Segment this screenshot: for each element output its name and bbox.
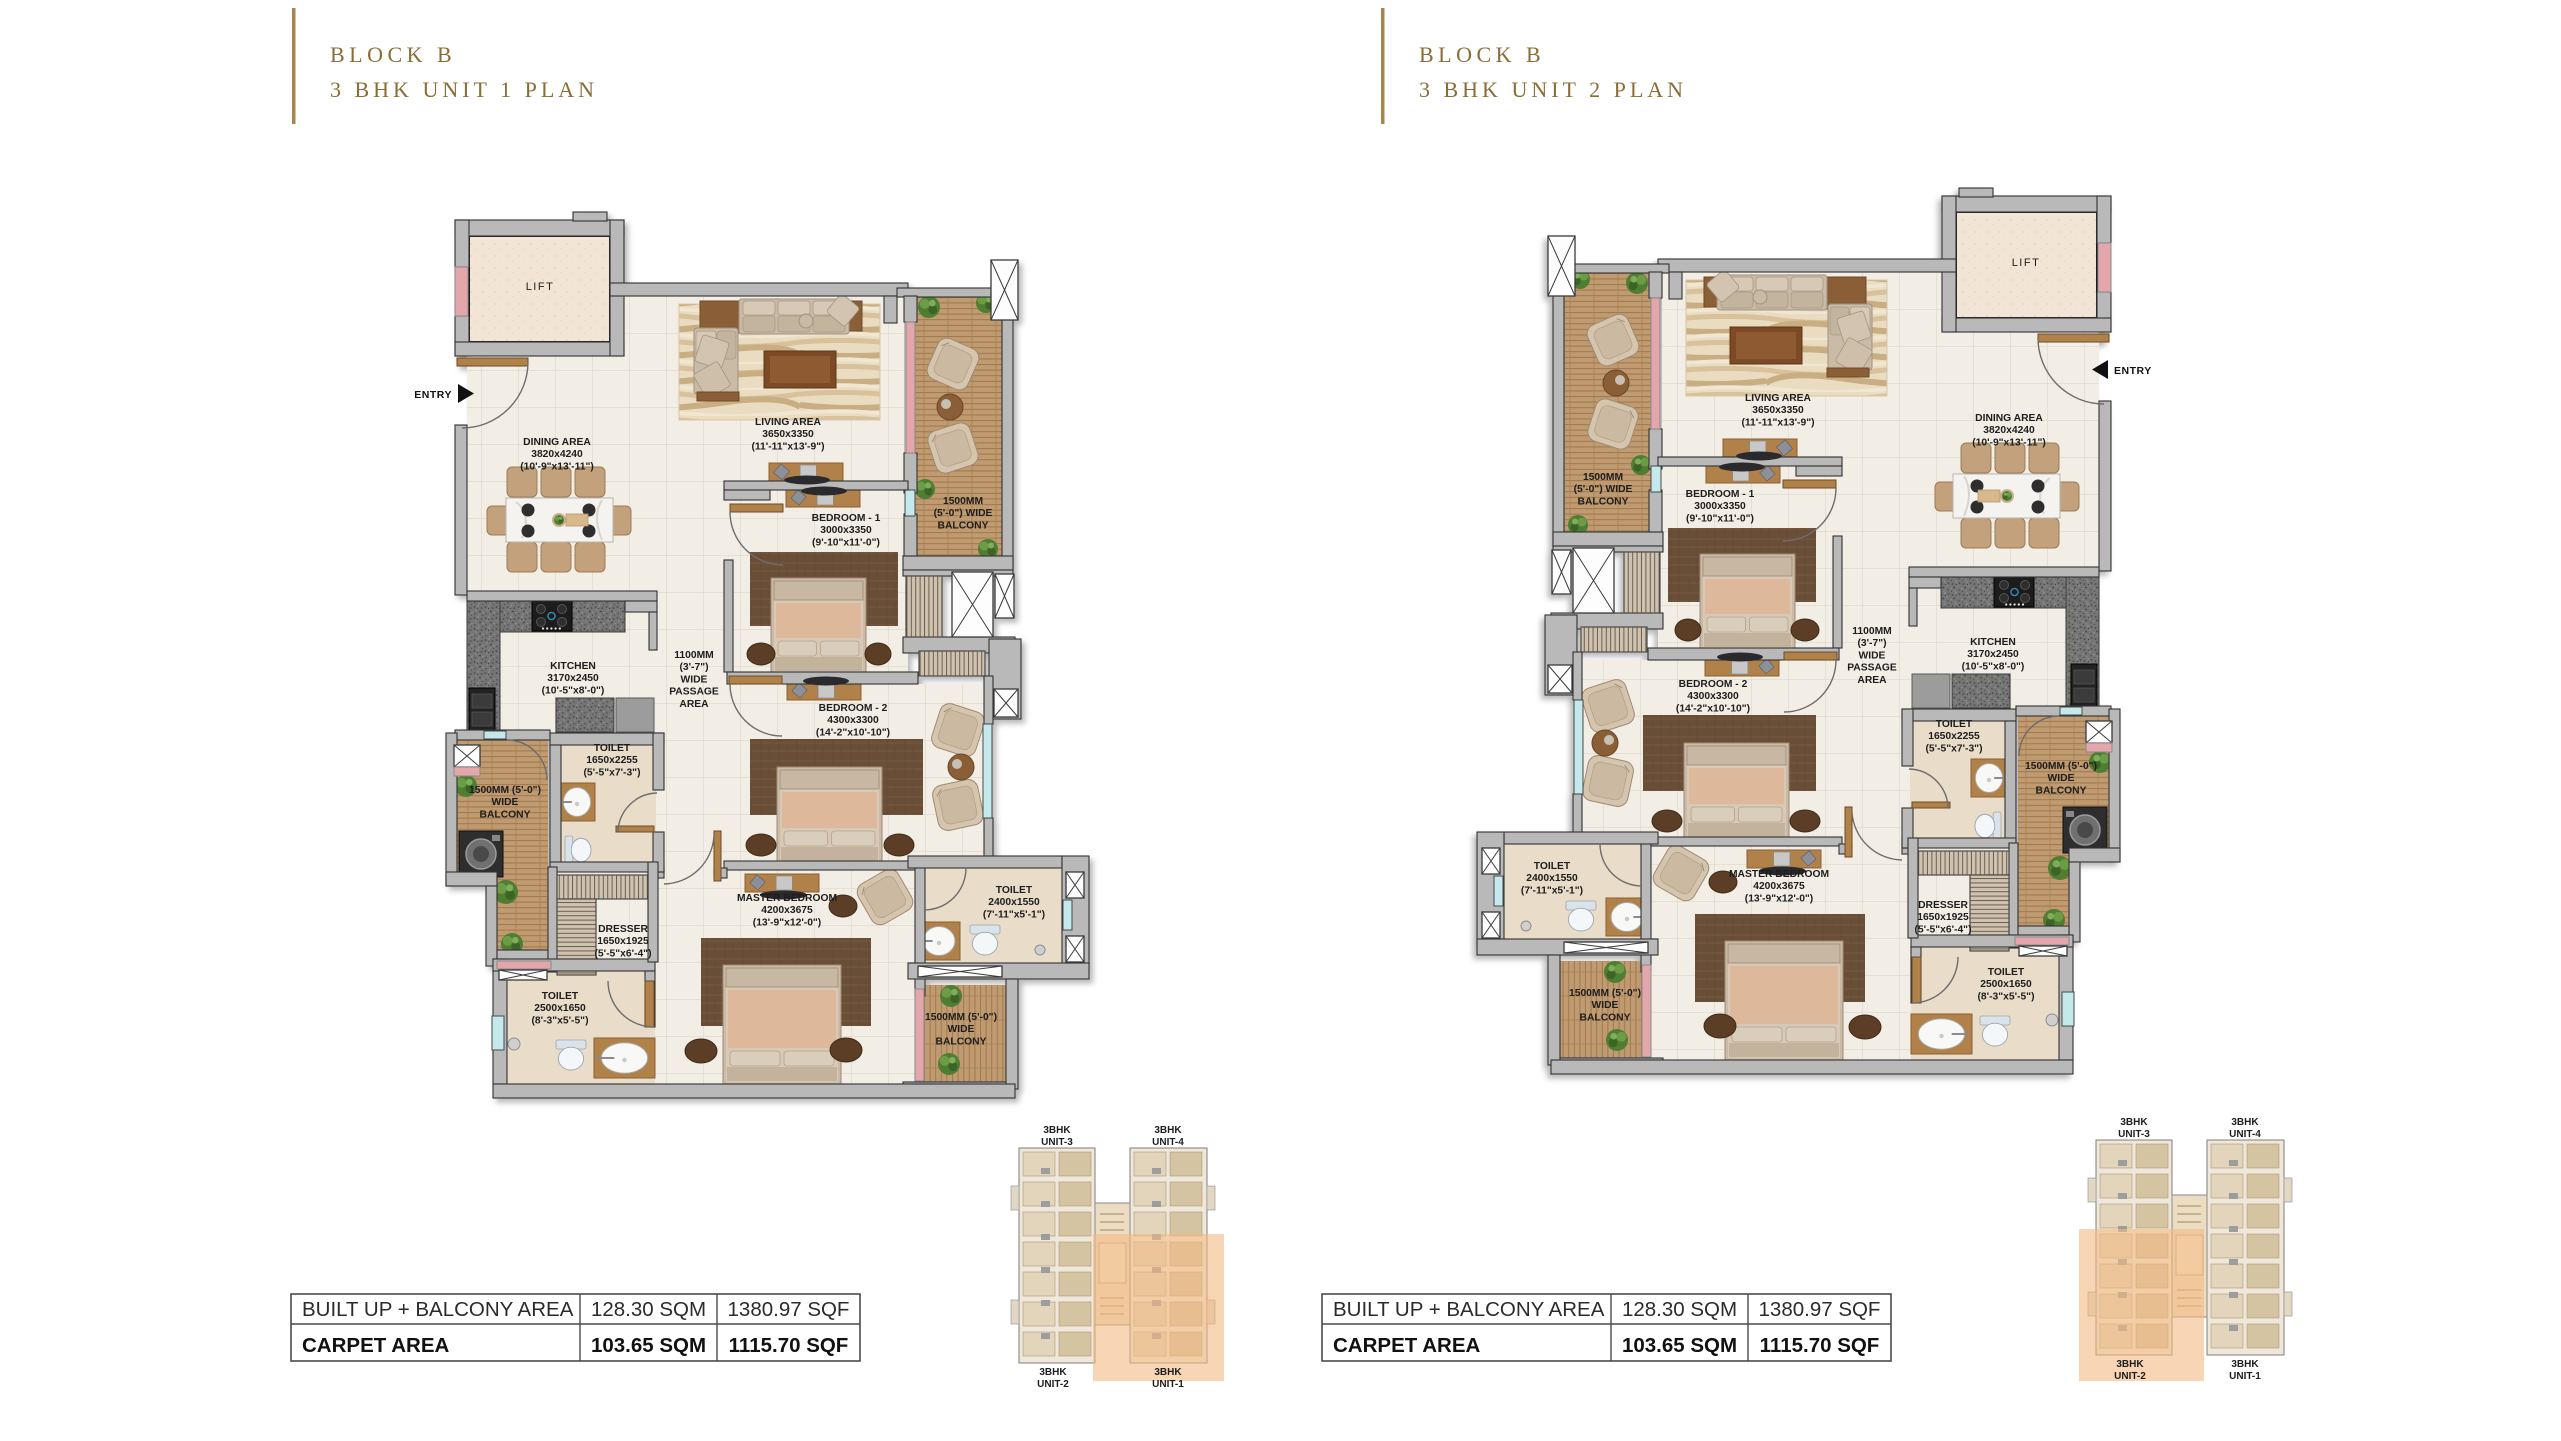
- svg-text:(5'-5"x7'-3"): (5'-5"x7'-3"): [1925, 743, 1982, 754]
- svg-text:2500x1650: 2500x1650: [1980, 979, 2032, 990]
- svg-text:1500MM: 1500MM: [1583, 472, 1623, 483]
- svg-text:WIDE: WIDE: [1592, 1000, 1619, 1011]
- svg-text:(7'-11"x5'-1"): (7'-11"x5'-1"): [1521, 885, 1583, 896]
- svg-text:(8'-3"x5'-5"): (8'-3"x5'-5"): [531, 1015, 588, 1026]
- svg-text:UNIT-4: UNIT-4: [2229, 1129, 2261, 1140]
- svg-text:(10'-5"x8'-0"): (10'-5"x8'-0"): [1962, 661, 2025, 672]
- svg-text:BEDROOM - 1: BEDROOM - 1: [1686, 489, 1755, 500]
- svg-text:103.65 SQM: 103.65 SQM: [1622, 1334, 1737, 1357]
- svg-text:(9'-10"x11'-0"): (9'-10"x11'-0"): [812, 537, 880, 548]
- svg-text:BALCONY: BALCONY: [1578, 496, 1629, 507]
- svg-text:3BHK: 3BHK: [2116, 1359, 2144, 1370]
- svg-text:1650x1925: 1650x1925: [1917, 912, 1969, 923]
- svg-text:BALCONY: BALCONY: [480, 809, 531, 820]
- svg-text:BALCONY: BALCONY: [936, 1036, 987, 1047]
- svg-text:BUILT UP + BALCONY AREA: BUILT UP + BALCONY AREA: [1333, 1298, 1605, 1321]
- svg-text:KITCHEN: KITCHEN: [1970, 637, 2016, 648]
- svg-text:AREA: AREA: [1857, 675, 1887, 686]
- svg-text:3BHK: 3BHK: [1154, 1367, 1182, 1378]
- svg-text:3000x3350: 3000x3350: [820, 525, 872, 536]
- svg-text:LIFT: LIFT: [526, 281, 555, 293]
- svg-text:(3'-7"): (3'-7"): [1857, 638, 1886, 649]
- svg-text:BUILT UP + BALCONY AREA: BUILT UP + BALCONY AREA: [302, 1298, 574, 1321]
- svg-text:103.65 SQM: 103.65 SQM: [591, 1334, 706, 1357]
- svg-text:BEDROOM - 2: BEDROOM - 2: [1679, 679, 1748, 690]
- svg-text:BEDROOM - 1: BEDROOM - 1: [812, 513, 881, 524]
- svg-text:LIFT: LIFT: [2012, 257, 2041, 269]
- svg-text:1500MM (5'-0"): 1500MM (5'-0"): [2025, 761, 2097, 772]
- svg-text:3170x2450: 3170x2450: [1967, 649, 2019, 660]
- svg-text:ENTRY: ENTRY: [414, 389, 452, 401]
- svg-text:1500MM (5'-0"): 1500MM (5'-0"): [469, 785, 541, 796]
- svg-text:TOILET: TOILET: [594, 743, 631, 754]
- svg-text:1100MM: 1100MM: [674, 650, 714, 661]
- svg-text:(10'-9"x13'-11"): (10'-9"x13'-11"): [520, 461, 594, 472]
- svg-text:3000x3350: 3000x3350: [1694, 501, 1746, 512]
- svg-text:3BHK: 3BHK: [1154, 1125, 1182, 1136]
- svg-text:3170x2450: 3170x2450: [547, 673, 599, 684]
- svg-text:(13'-9"x12'-0"): (13'-9"x12'-0"): [1745, 893, 1813, 904]
- svg-text:2400x1550: 2400x1550: [988, 897, 1040, 908]
- svg-text:128.30 SQM: 128.30 SQM: [591, 1298, 706, 1321]
- svg-text:3 BHK UNIT 1 PLAN: 3 BHK UNIT 1 PLAN: [330, 77, 598, 102]
- svg-text:1380.97 SQF: 1380.97 SQF: [1759, 1298, 1881, 1321]
- svg-text:DRESSER: DRESSER: [598, 924, 648, 935]
- svg-text:BALCONY: BALCONY: [938, 520, 989, 531]
- svg-text:PASSAGE: PASSAGE: [669, 687, 719, 698]
- svg-text:(5'-0") WIDE: (5'-0") WIDE: [1574, 484, 1633, 495]
- svg-text:(11'-11"x13'-9"): (11'-11"x13'-9"): [751, 441, 824, 452]
- svg-text:BLOCK B: BLOCK B: [1419, 42, 1545, 67]
- svg-text:1650x1925: 1650x1925: [597, 936, 649, 947]
- svg-text:3BHK: 3BHK: [2231, 1117, 2259, 1128]
- svg-text:UNIT-3: UNIT-3: [2118, 1129, 2150, 1140]
- svg-text:MASTER BEDROOM: MASTER BEDROOM: [737, 893, 837, 904]
- svg-text:WIDE: WIDE: [948, 1024, 975, 1035]
- svg-text:1500MM (5'-0"): 1500MM (5'-0"): [925, 1012, 997, 1023]
- svg-text:(8'-3"x5'-5"): (8'-3"x5'-5"): [1977, 991, 2034, 1002]
- svg-text:(11'-11"x13'-9"): (11'-11"x13'-9"): [1741, 417, 1814, 428]
- svg-text:(9'-10"x11'-0"): (9'-10"x11'-0"): [1686, 513, 1754, 524]
- svg-text:2500x1650: 2500x1650: [534, 1003, 586, 1014]
- svg-text:3 BHK UNIT 2 PLAN: 3 BHK UNIT 2 PLAN: [1419, 77, 1687, 102]
- svg-text:UNIT-2: UNIT-2: [1037, 1379, 1069, 1390]
- svg-text:UNIT-1: UNIT-1: [2229, 1371, 2261, 1382]
- svg-text:TOILET: TOILET: [1534, 861, 1571, 872]
- svg-text:4200x3675: 4200x3675: [761, 905, 813, 916]
- svg-text:(14'-2"x10'-10"): (14'-2"x10'-10"): [1676, 703, 1750, 714]
- svg-text:UNIT-4: UNIT-4: [1152, 1137, 1184, 1148]
- svg-text:2400x1550: 2400x1550: [1526, 873, 1578, 884]
- svg-text:(3'-7"): (3'-7"): [679, 662, 708, 673]
- svg-text:128.30 SQM: 128.30 SQM: [1622, 1298, 1737, 1321]
- svg-text:WIDE: WIDE: [681, 674, 708, 685]
- svg-text:1115.70 SQF: 1115.70 SQF: [1760, 1334, 1880, 1357]
- svg-text:AREA: AREA: [679, 699, 709, 710]
- svg-text:1115.70 SQF: 1115.70 SQF: [729, 1334, 849, 1357]
- svg-text:(5'-5"x7'-3"): (5'-5"x7'-3"): [583, 767, 640, 778]
- svg-text:DINING AREA: DINING AREA: [1975, 413, 2043, 424]
- svg-text:4300x3300: 4300x3300: [1687, 691, 1739, 702]
- svg-text:WIDE: WIDE: [492, 797, 519, 808]
- svg-text:CARPET AREA: CARPET AREA: [302, 1334, 449, 1357]
- svg-text:3BHK: 3BHK: [1043, 1125, 1071, 1136]
- svg-text:3BHK: 3BHK: [1039, 1367, 1067, 1378]
- svg-text:(7'-11"x5'-1"): (7'-11"x5'-1"): [983, 909, 1045, 920]
- svg-text:(10'-5"x8'-0"): (10'-5"x8'-0"): [542, 685, 605, 696]
- svg-text:MASTER BEDROOM: MASTER BEDROOM: [1729, 869, 1829, 880]
- svg-text:LIVING AREA: LIVING AREA: [755, 417, 822, 428]
- svg-text:(14'-2"x10'-10"): (14'-2"x10'-10"): [816, 727, 890, 738]
- svg-text:1650x2255: 1650x2255: [1928, 731, 1980, 742]
- svg-text:WIDE: WIDE: [2048, 773, 2075, 784]
- svg-text:3650x3350: 3650x3350: [1752, 405, 1804, 416]
- svg-text:UNIT-3: UNIT-3: [1041, 1137, 1073, 1148]
- svg-text:3820x4240: 3820x4240: [1983, 425, 2035, 436]
- svg-text:WIDE: WIDE: [1859, 650, 1886, 661]
- svg-text:ENTRY: ENTRY: [2114, 365, 2152, 377]
- svg-text:CARPET AREA: CARPET AREA: [1333, 1334, 1480, 1357]
- svg-text:UNIT-1: UNIT-1: [1152, 1379, 1184, 1390]
- svg-text:(10'-9"x13'-11"): (10'-9"x13'-11"): [1972, 437, 2046, 448]
- svg-text:KITCHEN: KITCHEN: [550, 661, 596, 672]
- svg-text:LIVING AREA: LIVING AREA: [1745, 393, 1812, 404]
- svg-text:3650x3350: 3650x3350: [762, 429, 814, 440]
- svg-text:BALCONY: BALCONY: [2036, 785, 2087, 796]
- svg-text:3BHK: 3BHK: [2120, 1117, 2148, 1128]
- svg-text:TOILET: TOILET: [1988, 967, 2025, 978]
- svg-text:DRESSER: DRESSER: [1918, 900, 1968, 911]
- svg-text:1500MM: 1500MM: [943, 496, 983, 507]
- svg-text:PASSAGE: PASSAGE: [1847, 663, 1897, 674]
- svg-text:4200x3675: 4200x3675: [1753, 881, 1805, 892]
- svg-text:BEDROOM - 2: BEDROOM - 2: [819, 703, 888, 714]
- svg-text:1500MM (5'-0"): 1500MM (5'-0"): [1569, 988, 1641, 999]
- svg-text:3BHK: 3BHK: [2231, 1359, 2259, 1370]
- svg-text:TOILET: TOILET: [542, 991, 579, 1002]
- svg-text:TOILET: TOILET: [1936, 719, 1973, 730]
- svg-text:DINING AREA: DINING AREA: [523, 437, 591, 448]
- svg-text:(5'-5"x6'-4"): (5'-5"x6'-4"): [594, 948, 651, 959]
- svg-text:1100MM: 1100MM: [1852, 626, 1892, 637]
- svg-text:1380.97 SQF: 1380.97 SQF: [728, 1298, 850, 1321]
- svg-text:UNIT-2: UNIT-2: [2114, 1371, 2146, 1382]
- svg-text:1650x2255: 1650x2255: [586, 755, 638, 766]
- svg-text:TOILET: TOILET: [996, 885, 1033, 896]
- svg-text:3820x4240: 3820x4240: [531, 449, 583, 460]
- svg-text:(5'-0") WIDE: (5'-0") WIDE: [934, 508, 993, 519]
- svg-text:(13'-9"x12'-0"): (13'-9"x12'-0"): [753, 917, 821, 928]
- svg-text:(5'-5"x6'-4"): (5'-5"x6'-4"): [1914, 924, 1971, 935]
- svg-text:BALCONY: BALCONY: [1580, 1012, 1631, 1023]
- svg-text:BLOCK B: BLOCK B: [330, 42, 456, 67]
- svg-text:4300x3300: 4300x3300: [827, 715, 879, 726]
